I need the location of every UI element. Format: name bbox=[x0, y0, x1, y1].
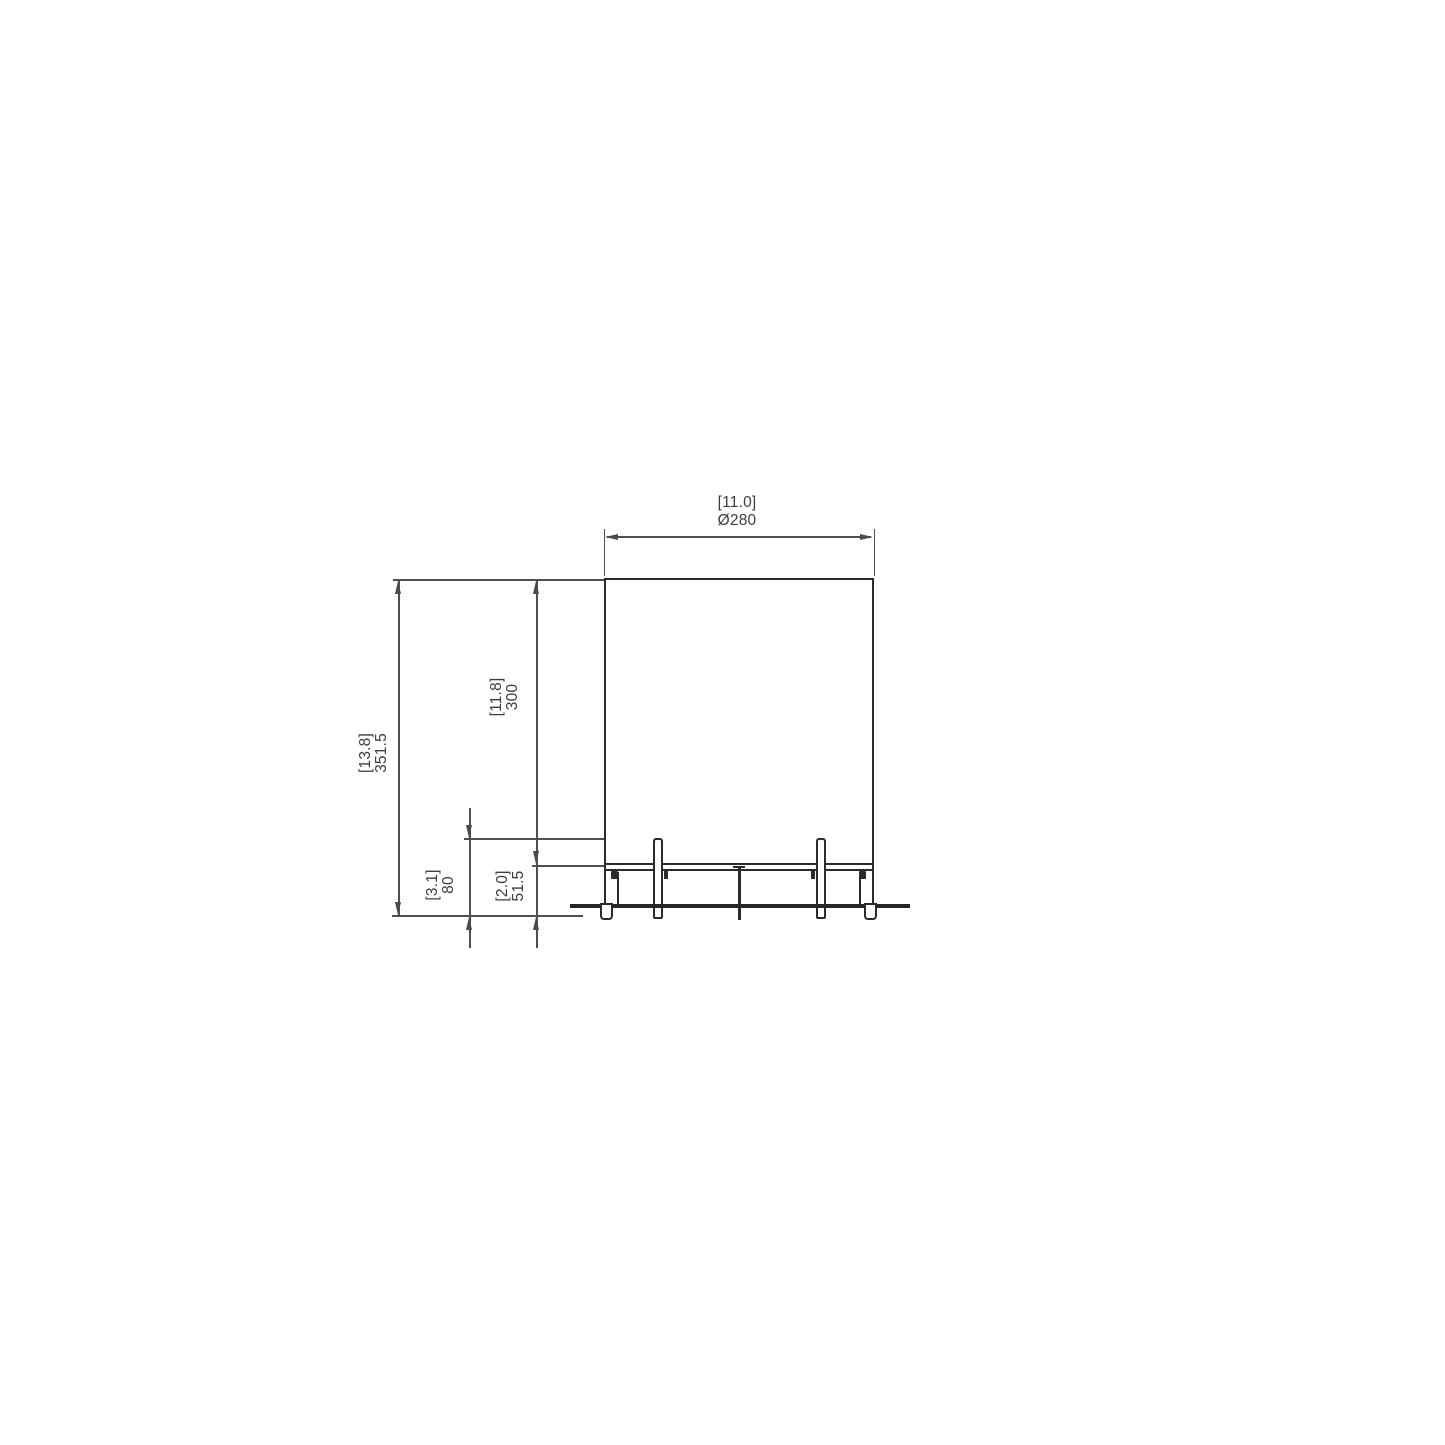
clearance-ext-top bbox=[532, 865, 604, 867]
total-height-ext-bottom bbox=[392, 915, 583, 917]
clearance-label-mm: 51.5 bbox=[511, 870, 527, 901]
center-post bbox=[738, 867, 741, 920]
width-dim-line bbox=[607, 536, 871, 538]
total-height-label-inches: [13.8] bbox=[358, 733, 374, 773]
base-height-label-mm: 80 bbox=[441, 869, 457, 900]
base-height-ext-line bbox=[464, 838, 604, 840]
base-height-arrow-top bbox=[466, 825, 472, 838]
clearance-label-inches: [2.0] bbox=[495, 870, 511, 901]
base-height-arrow-bottom bbox=[466, 917, 472, 930]
base-height-dim-label: [3.1] 80 bbox=[425, 869, 457, 900]
body-height-dim-line bbox=[536, 581, 538, 948]
left-foot bbox=[600, 903, 613, 920]
left-leg-clip bbox=[611, 871, 618, 879]
right-post-notch bbox=[811, 870, 815, 879]
width-dim-label-inches: [11.0] bbox=[718, 494, 757, 512]
total-height-label-mm: 351.5 bbox=[374, 733, 390, 773]
base-height-label-inches: [3.1] bbox=[425, 869, 441, 900]
width-ext-line-left bbox=[604, 529, 606, 576]
total-height-arrow-bottom bbox=[395, 902, 401, 915]
total-height-ext-top bbox=[393, 579, 604, 581]
body-height-label-inches: [11.8] bbox=[489, 678, 505, 717]
body-height-dim-label: [11.8] 300 bbox=[489, 678, 521, 717]
product-body-outline bbox=[604, 578, 874, 865]
width-dim-label-mm: Ø280 bbox=[718, 512, 757, 530]
total-height-dim-label: [13.8] 351.5 bbox=[358, 733, 390, 773]
body-height-label-mm: 300 bbox=[505, 678, 521, 717]
ground-line bbox=[570, 904, 910, 908]
width-dim-label: [11.0] Ø280 bbox=[718, 494, 757, 530]
right-foot bbox=[864, 903, 877, 920]
body-height-arrow-bottom bbox=[533, 851, 539, 864]
body-height-arrow-top bbox=[533, 581, 539, 594]
width-arrow-right bbox=[860, 534, 873, 540]
right-leg-clip bbox=[859, 871, 866, 879]
total-height-arrow-top bbox=[395, 581, 401, 594]
clearance-arrow-bottom bbox=[533, 917, 539, 930]
technical-drawing-canvas: [11.0] Ø280 [13.8] 351.5 [11.8] 300 [3.1… bbox=[0, 0, 1445, 1445]
clearance-dim-label: [2.0] 51.5 bbox=[495, 870, 527, 901]
width-ext-line-right bbox=[874, 529, 876, 576]
left-leg-outer-line bbox=[604, 865, 606, 906]
left-post-notch bbox=[664, 870, 668, 879]
right-leg-outer-line bbox=[872, 865, 874, 906]
total-height-dim-line bbox=[398, 581, 400, 915]
width-arrow-left bbox=[605, 534, 618, 540]
